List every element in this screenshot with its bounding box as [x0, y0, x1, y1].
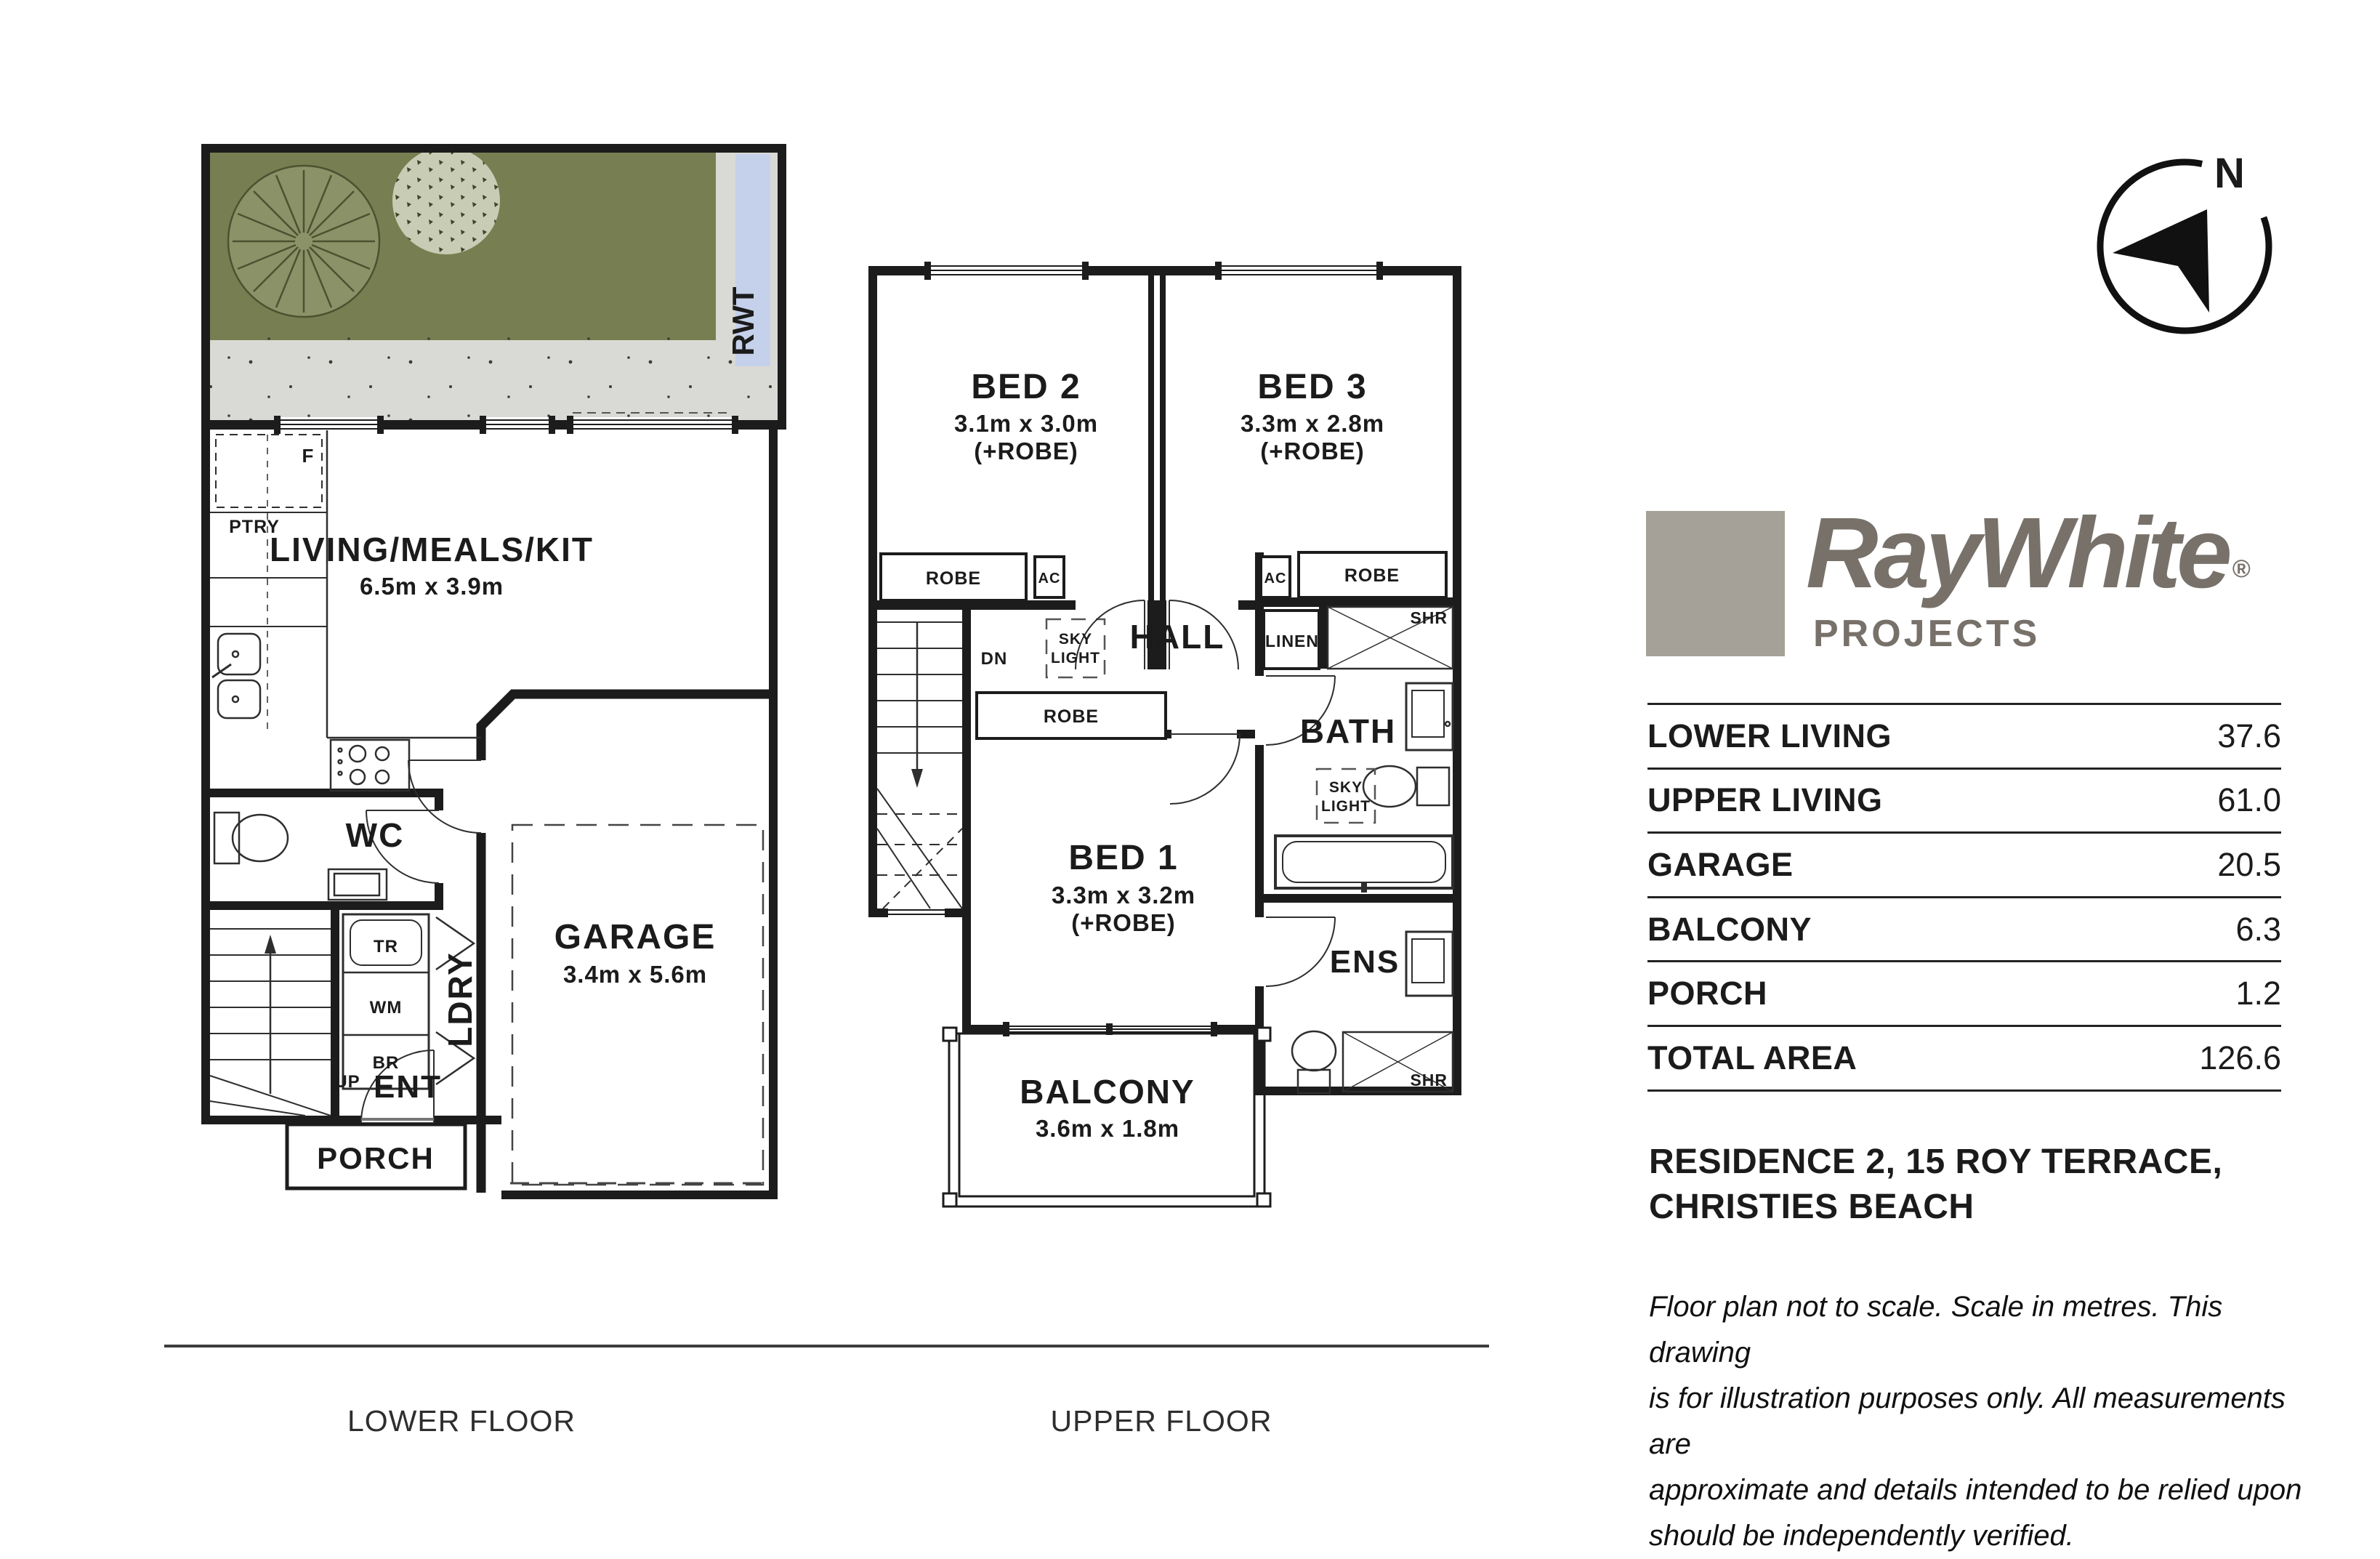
upper-floor-label: UPPER FLOOR [943, 1399, 1379, 1443]
row-value: 37.6 [2217, 717, 2281, 755]
lower-floor-plan: RWT [201, 144, 786, 1199]
logo-square [1646, 511, 1785, 656]
row-label: BALCONY [1647, 911, 1812, 948]
wc-fixtures [214, 810, 439, 900]
label-shr-ens: SHR [1410, 1071, 1448, 1089]
label-tr: TR [374, 937, 398, 956]
area-table: LOWER LIVING37.6 UPPER LIVING61.0 GARAGE… [1647, 703, 2281, 1092]
row-label: PORCH [1647, 975, 1767, 1012]
label-robe-bed3: ROBE [1344, 565, 1400, 586]
label-bed1: BED 1 [1068, 839, 1178, 877]
label-sky-bath: SKY [1329, 779, 1363, 796]
table-row: TOTAL AREA126.6 [1647, 1025, 2281, 1092]
brand-sub: PROJECTS [1813, 612, 2040, 656]
floor-label-separator [164, 1345, 1489, 1347]
table-row: GARAGE20.5 [1647, 831, 2281, 896]
label-shr-bath: SHR [1410, 608, 1448, 627]
label-ens: ENS [1330, 944, 1400, 980]
label-up: UP [334, 1072, 360, 1092]
dims-garage: 3.4m x 5.6m [563, 961, 707, 988]
registered-mark: ® [2232, 555, 2251, 583]
table-row: UPPER LIVING61.0 [1647, 768, 2281, 832]
row-value: 1.2 [2235, 975, 2281, 1012]
upper-floor-plan: BED 2 3.1m x 3.0m (+ROBE) BED 3 3.3m x 2… [868, 262, 1461, 1206]
north-arrow-icon [2113, 209, 2209, 313]
row-value: 20.5 [2217, 846, 2281, 884]
row-label: TOTAL AREA [1647, 1039, 1857, 1077]
table-row: BALCONY6.3 [1647, 896, 2281, 961]
label-hall: HALL [1130, 618, 1225, 656]
disclaimer-line: Floor plan not to scale. Scale in metres… [1649, 1284, 2332, 1376]
stairs-down [877, 622, 962, 909]
label-porch: PORCH [317, 1141, 435, 1175]
label-ac-bed2: AC [1038, 571, 1061, 587]
disclaimer-line: should be independently verified. [1649, 1513, 2332, 1559]
tree-icon [228, 166, 379, 317]
disclaimer-text: Floor plan not to scale. Scale in metres… [1649, 1284, 2332, 1559]
label-fridge: F [302, 445, 315, 467]
bush-icon [392, 147, 500, 254]
address-line: CHRISTIES BEACH [1649, 1185, 2222, 1230]
table-row: PORCH1.2 [1647, 960, 2281, 1025]
brand-name: RayWhite® [1806, 496, 2251, 611]
sink-icon [212, 634, 260, 718]
row-label: UPPER LIVING [1647, 781, 1883, 819]
table-row: LOWER LIVING37.6 [1647, 703, 2281, 768]
label-bath: BATH [1300, 712, 1396, 750]
disclaimer-line: is for illustration purposes only. All m… [1649, 1376, 2332, 1467]
label-wc: WC [346, 816, 405, 854]
car-space [512, 825, 763, 1185]
label-light-hall: LIGHT [1051, 650, 1100, 666]
row-label: GARAGE [1647, 846, 1794, 884]
label-balcony: BALCONY [1020, 1073, 1195, 1111]
note-bed1: (+ROBE) [1071, 909, 1176, 936]
compass: N [2100, 150, 2269, 331]
garage-details [510, 825, 763, 1185]
dims-bed3: 3.3m x 2.8m [1241, 410, 1384, 437]
label-ent: ENT [374, 1069, 442, 1105]
up-arrow-icon [265, 935, 276, 954]
garage-boundary-wall [481, 694, 773, 760]
cooktop-icon [331, 740, 409, 791]
dims-bed1: 3.3m x 3.2m [1052, 882, 1195, 909]
label-robe-bed2: ROBE [926, 568, 981, 589]
label-ldry: LDRY [441, 951, 479, 1047]
dims-balcony: 3.6m x 1.8m [1036, 1115, 1179, 1142]
north-label: N [2214, 150, 2245, 197]
down-arrow-icon [911, 769, 923, 788]
label-living: LIVING/MEALS/KIT [270, 531, 594, 568]
label-garage: GARAGE [554, 918, 717, 956]
disclaimer-line: approximate and details intended to be r… [1649, 1467, 2332, 1513]
note-bed3: (+ROBE) [1260, 438, 1365, 464]
label-bed2: BED 2 [971, 368, 1081, 406]
bathtub-icon [1275, 836, 1453, 888]
row-value: 61.0 [2217, 781, 2281, 819]
label-ac-bed3: AC [1264, 571, 1287, 587]
row-label: LOWER LIVING [1647, 717, 1892, 755]
row-value: 126.6 [2199, 1039, 2281, 1077]
label-ptry: PTRY [229, 517, 280, 537]
paving-speckles [210, 334, 778, 422]
ray-white-logo: RayWhite® PROJECTS [1646, 509, 2300, 669]
note-bed2: (+ROBE) [974, 438, 1078, 464]
label-linen: LINEN [1265, 632, 1319, 650]
lower-floor-label: LOWER FLOOR [243, 1399, 679, 1443]
garden-courtyard: RWT [201, 144, 786, 422]
address-line: RESIDENCE 2, 15 ROY TERRACE, [1649, 1140, 2222, 1185]
dims-bed2: 3.1m x 3.0m [954, 410, 1098, 437]
showers [1328, 607, 1453, 1092]
label-robe-bed1: ROBE [1044, 706, 1099, 727]
brand-wordmark: RayWhite [1806, 497, 2228, 609]
kitchen [210, 430, 481, 791]
property-address: RESIDENCE 2, 15 ROY TERRACE, CHRISTIES B… [1649, 1140, 2222, 1230]
label-br: BR [373, 1053, 400, 1073]
stairs-up [210, 929, 331, 1116]
label-sky-hall: SKY [1059, 631, 1092, 648]
label-dn: DN [981, 649, 1008, 669]
row-value: 6.3 [2235, 911, 2281, 948]
label-light-bath: LIGHT [1321, 798, 1371, 815]
label-wm: WM [370, 998, 403, 1018]
rwt-label: RWT [726, 286, 760, 355]
dims-living: 6.5m x 3.9m [360, 573, 504, 600]
label-bed3: BED 3 [1257, 368, 1367, 406]
